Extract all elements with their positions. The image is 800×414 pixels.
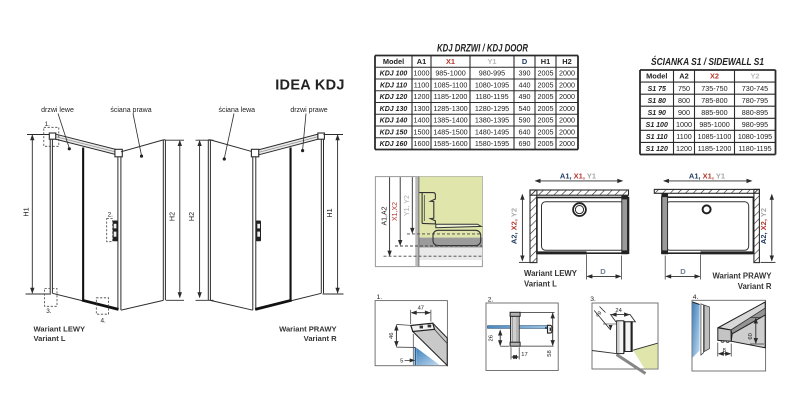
svg-text:Model: Model — [646, 72, 667, 81]
svg-text:390: 390 — [519, 69, 531, 78]
svg-text:X1: X1 — [446, 57, 455, 66]
svg-text:1080-1095: 1080-1095 — [738, 132, 772, 141]
svg-text:A2, X2, Y2: A2, X2, Y2 — [509, 208, 518, 244]
svg-text:1085-1100: 1085-1100 — [434, 80, 468, 89]
svg-text:985-1000: 985-1000 — [435, 69, 465, 78]
svg-text:1200: 1200 — [414, 92, 430, 101]
svg-text:H2: H2 — [562, 57, 571, 66]
svg-text:2000: 2000 — [559, 69, 575, 78]
svg-text:ŚCIANKA S1 / SIDEWALL S1: ŚCIANKA S1 / SIDEWALL S1 — [651, 55, 764, 68]
svg-text:2000: 2000 — [559, 116, 575, 125]
svg-text:Variant R: Variant R — [738, 282, 772, 291]
svg-text:X2: X2 — [710, 72, 719, 81]
svg-text:drzwi lewe: drzwi lewe — [41, 107, 74, 114]
svg-text:2.: 2. — [108, 212, 114, 219]
svg-text:A2, X2, Y2: A2, X2, Y2 — [759, 208, 768, 244]
svg-text:Wariant LEWY: Wariant LEWY — [524, 269, 578, 278]
svg-text:1000: 1000 — [676, 120, 692, 129]
svg-text:590: 590 — [519, 116, 531, 125]
svg-text:5: 5 — [400, 358, 403, 364]
svg-text:1300: 1300 — [414, 104, 430, 113]
svg-text:S1 90: S1 90 — [648, 110, 666, 117]
svg-text:H2: H2 — [187, 212, 196, 221]
svg-text:H1: H1 — [541, 57, 550, 66]
svg-text:1185-1200: 1185-1200 — [698, 144, 732, 153]
svg-text:3.: 3. — [46, 308, 52, 315]
svg-text:2005: 2005 — [538, 92, 554, 101]
svg-text:A2: A2 — [679, 72, 688, 81]
svg-text:980-995: 980-995 — [742, 120, 768, 129]
svg-text:Wariant PRAWY: Wariant PRAWY — [279, 325, 337, 334]
svg-text:KDJ 130: KDJ 130 — [380, 106, 408, 113]
svg-text:1580-1595: 1580-1595 — [475, 139, 509, 148]
svg-text:1480-1495: 1480-1495 — [475, 127, 509, 136]
svg-text:490: 490 — [519, 92, 531, 101]
svg-text:Wariant LEWY: Wariant LEWY — [34, 325, 86, 334]
svg-text:IDEA KDJ: IDEA KDJ — [275, 78, 345, 94]
svg-text:17: 17 — [521, 352, 527, 358]
svg-text:885-900: 885-900 — [701, 108, 727, 117]
svg-text:ściana lewa: ściana lewa — [219, 107, 256, 114]
svg-text:3.: 3. — [590, 296, 596, 303]
svg-text:1380-1395: 1380-1395 — [475, 116, 509, 125]
svg-text:1185-1200: 1185-1200 — [434, 92, 468, 101]
svg-text:1180-1195: 1180-1195 — [475, 92, 508, 101]
svg-text:2000: 2000 — [559, 104, 575, 113]
svg-text:S1 75: S1 75 — [648, 86, 666, 93]
svg-text:S1 80: S1 80 — [648, 98, 666, 105]
svg-text:S1 100: S1 100 — [646, 122, 668, 129]
svg-text:H1: H1 — [325, 208, 334, 217]
svg-text:1485-1500: 1485-1500 — [433, 127, 467, 136]
svg-text:1100: 1100 — [676, 132, 691, 141]
svg-text:780-795: 780-795 — [742, 96, 768, 105]
svg-text:Variant L: Variant L — [34, 334, 66, 343]
svg-text:2.: 2. — [488, 297, 494, 304]
svg-text:X1,X2: X1,X2 — [392, 202, 399, 221]
svg-text:1000: 1000 — [414, 69, 430, 78]
svg-text:2000: 2000 — [559, 92, 575, 101]
svg-text:KDJ 140: KDJ 140 — [380, 118, 408, 125]
svg-text:S1 110: S1 110 — [646, 134, 668, 141]
svg-text:690: 690 — [519, 139, 531, 148]
svg-text:1085-1100: 1085-1100 — [698, 132, 732, 141]
svg-text:Y1: Y1 — [487, 57, 496, 66]
svg-text:1585-1600: 1585-1600 — [433, 139, 467, 148]
svg-text:2005: 2005 — [538, 139, 554, 148]
svg-text:1400: 1400 — [414, 116, 430, 125]
svg-text:A1,A2: A1,A2 — [381, 206, 388, 225]
svg-text:540: 540 — [519, 104, 531, 113]
svg-text:880-895: 880-895 — [742, 108, 768, 117]
svg-text:980-995: 980-995 — [479, 69, 505, 78]
svg-text:900: 900 — [678, 108, 690, 117]
svg-text:2005: 2005 — [538, 69, 554, 78]
svg-text:750: 750 — [678, 84, 690, 93]
svg-text:H1: H1 — [22, 207, 31, 216]
svg-text:1285-1300: 1285-1300 — [433, 104, 467, 113]
svg-text:2000: 2000 — [559, 139, 575, 148]
svg-text:2005: 2005 — [538, 127, 554, 136]
svg-text:S1 120: S1 120 — [646, 146, 668, 153]
svg-text:1.: 1. — [45, 121, 51, 128]
svg-text:2005: 2005 — [538, 80, 554, 89]
svg-text:Variant R: Variant R — [304, 334, 337, 343]
svg-text:D: D — [600, 267, 606, 276]
svg-text:60: 60 — [748, 333, 754, 339]
svg-text:985-1000: 985-1000 — [699, 120, 729, 129]
svg-text:H2: H2 — [167, 212, 176, 221]
svg-text:Y1, Y2: Y1, Y2 — [404, 195, 411, 216]
svg-text:4.: 4. — [101, 318, 107, 325]
svg-text:1.: 1. — [377, 294, 383, 301]
svg-text:A1, X1, Y1: A1, X1, Y1 — [560, 172, 596, 181]
svg-text:A1, X1, Y1: A1, X1, Y1 — [689, 172, 725, 181]
svg-text:KDJ 110: KDJ 110 — [380, 82, 407, 89]
svg-text:800: 800 — [678, 96, 690, 105]
svg-text:2005: 2005 — [538, 104, 554, 113]
svg-text:1180-1195: 1180-1195 — [738, 144, 771, 153]
svg-text:KDJ 160: KDJ 160 — [380, 141, 408, 148]
svg-text:785-800: 785-800 — [701, 96, 727, 105]
svg-text:24: 24 — [615, 308, 622, 314]
svg-text:46: 46 — [389, 333, 395, 339]
svg-text:Variant L: Variant L — [524, 280, 557, 289]
svg-text:47: 47 — [418, 305, 424, 311]
svg-text:1600: 1600 — [414, 139, 430, 148]
svg-text:440: 440 — [519, 80, 531, 89]
svg-text:1100: 1100 — [414, 80, 429, 89]
svg-text:Model: Model — [383, 57, 404, 66]
svg-text:735-750: 735-750 — [701, 84, 727, 93]
svg-text:Wariant PRAWY: Wariant PRAWY — [712, 271, 772, 280]
svg-text:KDJ 120: KDJ 120 — [380, 94, 408, 101]
svg-text:2005: 2005 — [538, 116, 554, 125]
svg-text:58: 58 — [547, 350, 553, 356]
svg-text:730-745: 730-745 — [742, 84, 768, 93]
svg-text:1080-1095: 1080-1095 — [475, 80, 509, 89]
svg-text:KDJ 150: KDJ 150 — [380, 129, 408, 136]
svg-text:Y2: Y2 — [750, 72, 759, 81]
svg-text:1280-1295: 1280-1295 — [475, 104, 509, 113]
svg-text:ściana prawa: ściana prawa — [110, 107, 151, 114]
svg-text:2000: 2000 — [559, 80, 575, 89]
svg-text:1200: 1200 — [676, 144, 692, 153]
svg-text:D: D — [680, 267, 686, 276]
svg-text:640: 640 — [519, 127, 531, 136]
svg-text:1385-1400: 1385-1400 — [433, 116, 467, 125]
svg-text:KDJ DRZWI / KDJ DOOR: KDJ DRZWI / KDJ DOOR — [437, 42, 528, 54]
svg-text:26: 26 — [488, 335, 494, 341]
svg-text:KDJ 100: KDJ 100 — [380, 71, 408, 78]
svg-text:drzwi prawe: drzwi prawe — [290, 107, 327, 114]
svg-text:A1: A1 — [417, 57, 426, 66]
svg-text:D: D — [522, 57, 528, 66]
svg-text:8: 8 — [723, 348, 726, 354]
svg-text:1500: 1500 — [414, 127, 430, 136]
svg-text:2000: 2000 — [559, 127, 575, 136]
svg-text:4.: 4. — [693, 294, 699, 301]
